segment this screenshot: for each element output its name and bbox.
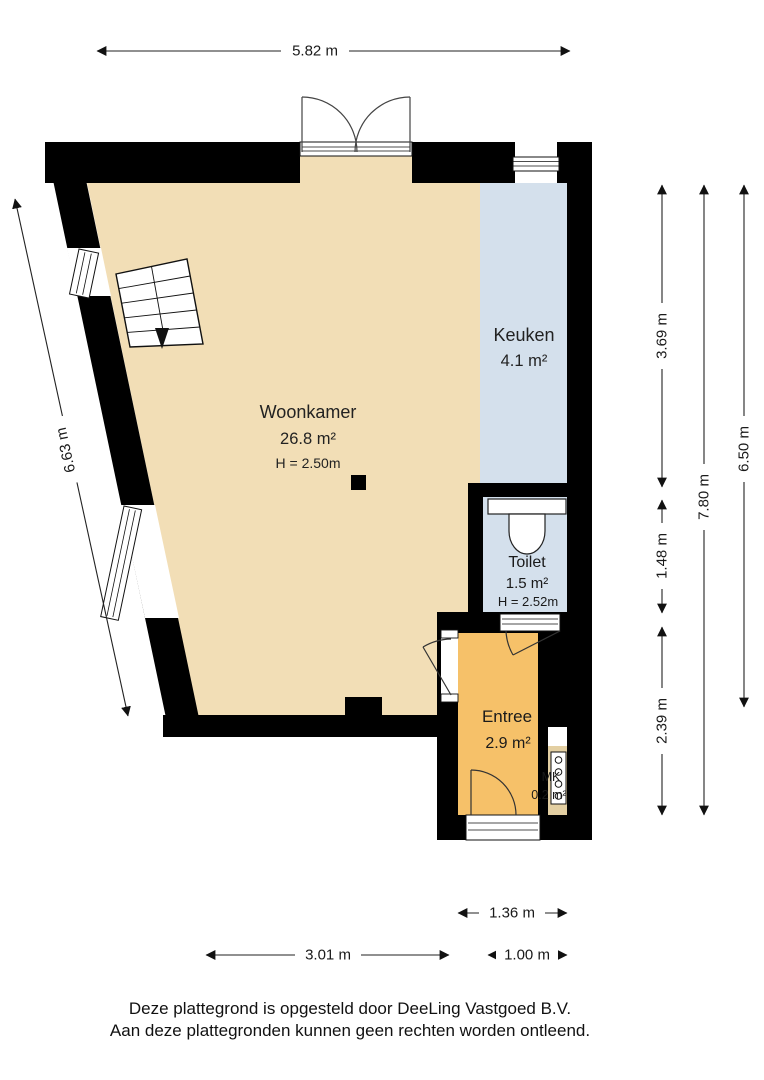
woonkamer-height: H = 2.50m	[276, 455, 341, 471]
floorplan-page: Woonkamer 26.8 m² H = 2.50m Keuken 4.1 m…	[0, 0, 764, 1080]
dim-bottom-entree-label: 1.36 m	[479, 903, 545, 923]
keuken-label: Keuken	[493, 325, 554, 345]
entree-label: Entree	[482, 707, 532, 726]
meterkast-area: 0.2 m²	[531, 788, 566, 802]
floorplan-drawing: Woonkamer 26.8 m² H = 2.50m Keuken 4.1 m…	[0, 0, 764, 1080]
dim-right-total-label: 7.80 m	[694, 464, 714, 530]
wall-pillar	[345, 697, 382, 715]
woonkamer-label: Woonkamer	[260, 402, 357, 422]
svg-text:1.00 m: 1.00 m	[504, 947, 550, 964]
toilet-area: 1.5 m²	[506, 575, 549, 592]
dim-bottom-left-label: 3.01 m	[295, 945, 361, 965]
wall-toilet-left	[468, 483, 483, 633]
svg-text:3.01 m: 3.01 m	[305, 947, 351, 964]
stairs	[116, 259, 203, 349]
wall-toilet-top	[468, 483, 567, 497]
footer-disclaimer-line2: Aan deze plattegronden kunnen geen recht…	[110, 1021, 590, 1040]
dim-right-outer-label: 6.50 m	[734, 416, 754, 482]
wall-right	[567, 142, 592, 840]
svg-text:5.82 m: 5.82 m	[292, 43, 338, 60]
svg-text:1.36 m: 1.36 m	[489, 905, 535, 922]
svg-text:1.48 m: 1.48 m	[654, 533, 671, 579]
dim-top-label: 5.82 m	[281, 41, 349, 61]
wall-top-mid	[412, 142, 515, 183]
dim-right-seg2-label: 1.48 m	[652, 523, 672, 589]
mk-slot	[548, 729, 567, 746]
keuken-area: 4.1 m²	[501, 352, 548, 370]
kitchen-window	[513, 157, 559, 183]
dim-bottom-right-label: 1.00 m	[496, 945, 558, 965]
toilet-label: Toilet	[508, 554, 546, 571]
svg-text:2.39 m: 2.39 m	[654, 698, 671, 744]
svg-text:7.80 m: 7.80 m	[696, 474, 713, 520]
dim-right-seg3-label: 2.39 m	[652, 688, 672, 754]
column	[351, 475, 366, 490]
entree-area: 2.9 m²	[485, 735, 531, 752]
woonkamer-area: 26.8 m²	[280, 430, 336, 448]
svg-text:6.50 m: 6.50 m	[736, 426, 753, 472]
footer-disclaimer-line1: Deze plattegrond is opgesteld door DeeLi…	[129, 999, 571, 1018]
wall-bottom-woonkamer	[163, 715, 437, 737]
wall-mk-block	[538, 633, 567, 727]
dim-right-seg1-label: 3.69 m	[652, 303, 672, 369]
svg-text:3.69 m: 3.69 m	[654, 313, 671, 359]
dim-left-label: 6.63 m	[49, 415, 83, 486]
toilet-height: H = 2.52m	[498, 594, 558, 609]
meterkast-label: MK	[542, 770, 561, 784]
